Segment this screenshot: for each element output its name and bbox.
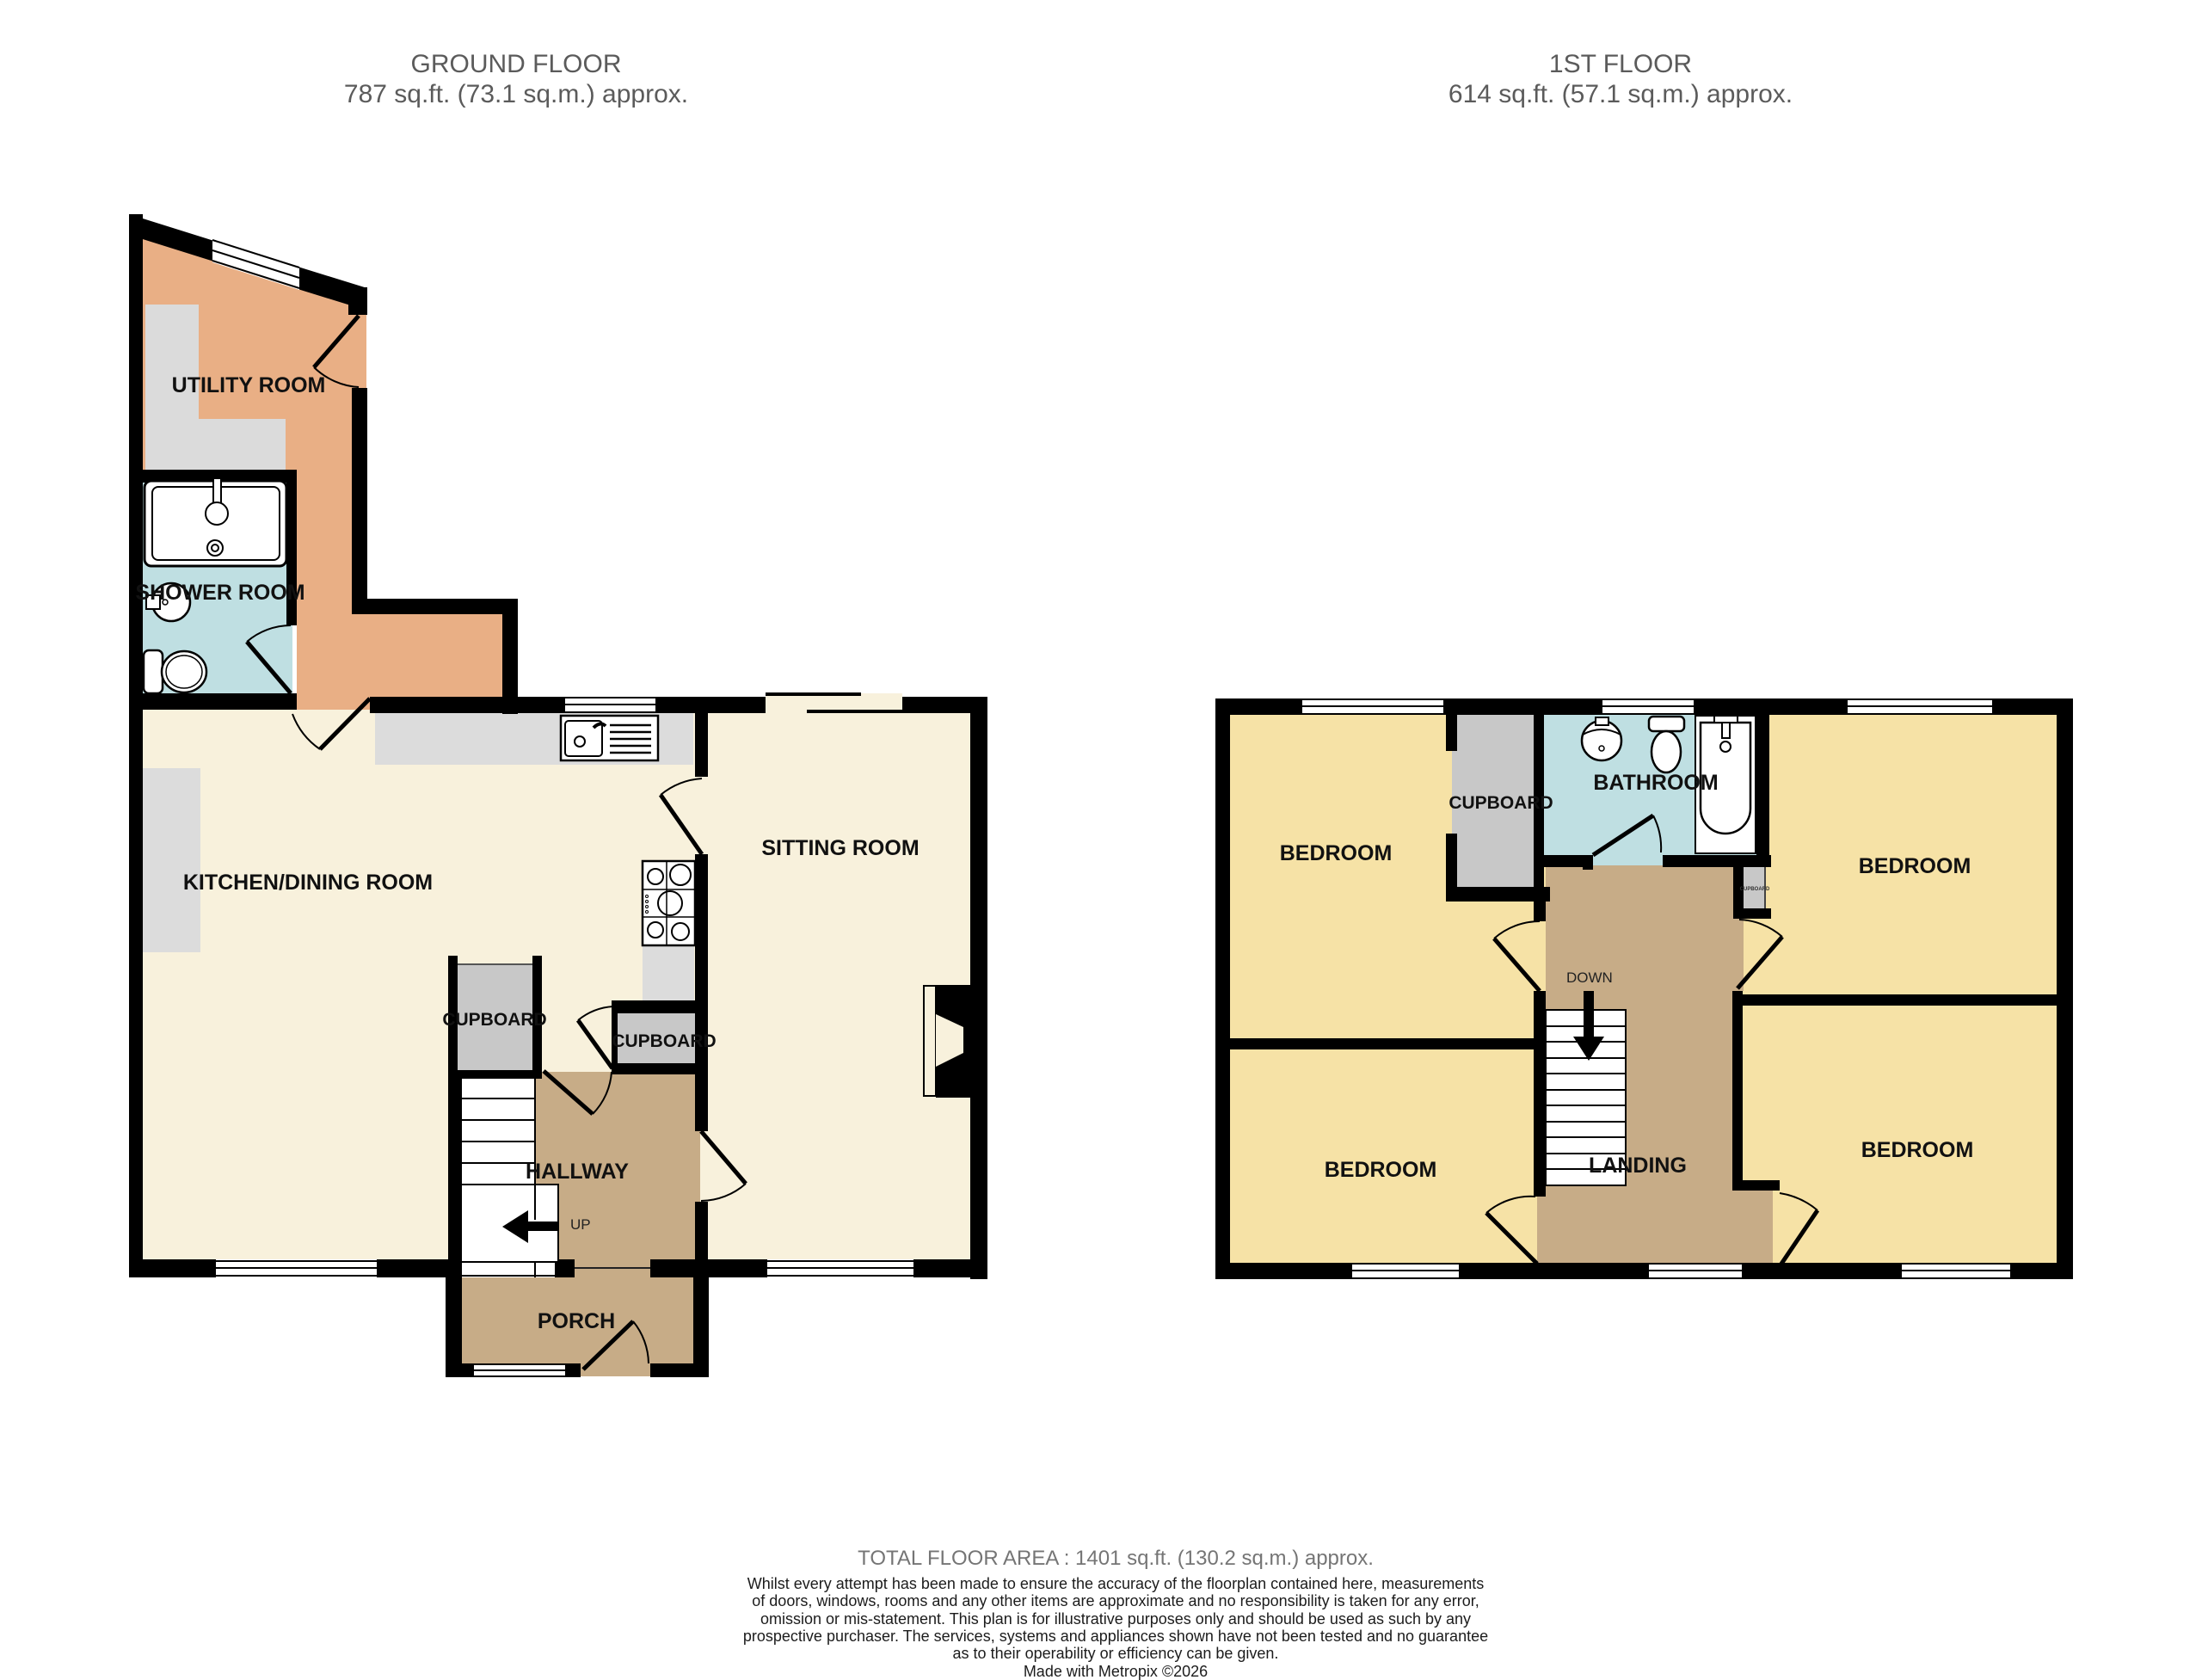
svg-text:GROUND FLOOR: GROUND FLOOR [410, 50, 621, 78]
svg-text:CUPBOARD: CUPBOARD [612, 1031, 716, 1051]
svg-text:HALLWAY: HALLWAY [526, 1160, 629, 1184]
svg-text:BEDROOM: BEDROOM [1859, 854, 1971, 878]
svg-text:as to their operability or eff: as to their operability or efficiency ca… [953, 1645, 1279, 1662]
svg-text:KITCHEN/DINING ROOM: KITCHEN/DINING ROOM [183, 871, 433, 895]
svg-text:1ST FLOOR: 1ST FLOOR [1549, 50, 1692, 78]
svg-text:CUPBOARD: CUPBOARD [442, 1010, 546, 1030]
svg-text:BEDROOM: BEDROOM [1280, 841, 1393, 865]
svg-text:614 sq.ft. (57.1 sq.m.) approx: 614 sq.ft. (57.1 sq.m.) approx. [1449, 80, 1793, 108]
svg-text:Made with Metropix ©2026: Made with Metropix ©2026 [1024, 1663, 1208, 1680]
svg-text:UTILITY ROOM: UTILITY ROOM [172, 373, 326, 397]
svg-text:BATHROOM: BATHROOM [1593, 771, 1718, 795]
svg-text:SITTING ROOM: SITTING ROOM [761, 836, 919, 860]
svg-text:Whilst every attempt has been: Whilst every attempt has been made to en… [747, 1575, 1484, 1592]
svg-text:TOTAL FLOOR AREA : 1401 sq.ft.: TOTAL FLOOR AREA : 1401 sq.ft. (130.2 sq… [858, 1547, 1374, 1570]
svg-text:DOWN: DOWN [1566, 969, 1613, 986]
svg-text:prospective purchaser. The ser: prospective purchaser. The services, sys… [743, 1628, 1488, 1645]
svg-text:LANDING: LANDING [1589, 1154, 1687, 1178]
svg-text:PORCH: PORCH [538, 1309, 615, 1333]
svg-text:of doors, windows, rooms and a: of doors, windows, rooms and any other i… [752, 1592, 1479, 1609]
svg-text:CUPBOARD: CUPBOARD [1449, 793, 1553, 813]
svg-text:SHOWER ROOM: SHOWER ROOM [135, 581, 304, 605]
svg-text:UP: UP [570, 1216, 591, 1233]
svg-text:omission or mis-statement. Thi: omission or mis-statement. This plan is … [760, 1610, 1471, 1628]
svg-text:CUPBOARD: CUPBOARD [1740, 887, 1770, 892]
svg-text:BEDROOM: BEDROOM [1861, 1138, 1974, 1162]
svg-text:BEDROOM: BEDROOM [1325, 1158, 1437, 1182]
svg-text:787 sq.ft. (73.1 sq.m.) approx: 787 sq.ft. (73.1 sq.m.) approx. [344, 80, 688, 108]
